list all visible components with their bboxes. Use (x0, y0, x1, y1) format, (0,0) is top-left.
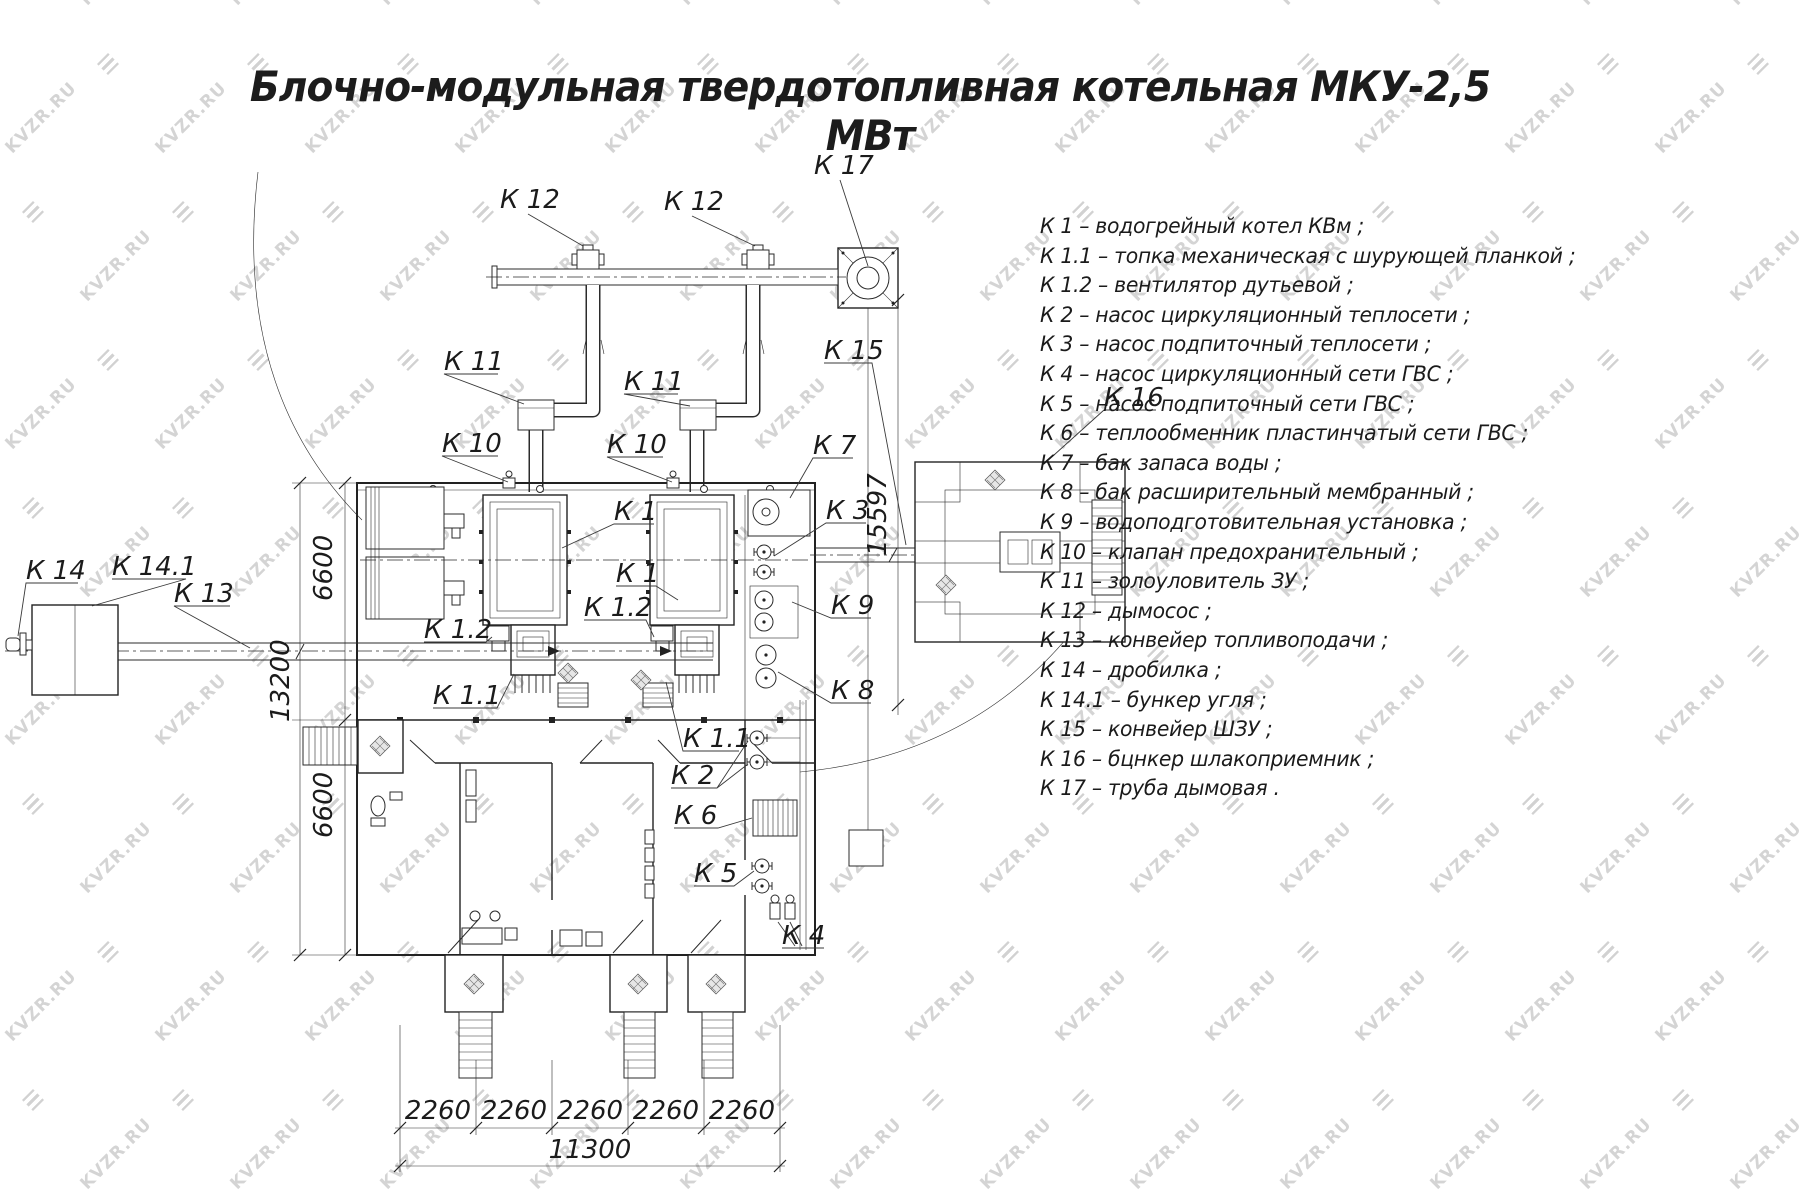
legend-item: К 14.1 – бункер угля ; (1040, 686, 1575, 716)
legend-item: К 16 – бцнкер шлакоприемник ; (1040, 745, 1575, 775)
legend-item: К 1 – водогрейный котел КВм ; (1040, 212, 1575, 242)
room-furniture (371, 663, 654, 946)
equipment-legend: К 1 – водогрейный котел КВм ;К 1.1 – топ… (1040, 212, 1575, 804)
drawing-label: К 2 (671, 761, 714, 791)
drawing-label: К 15 (824, 336, 884, 366)
roof-manifold (430, 486, 774, 493)
legend-item: К 15 – конвейер ШЗУ ; (1040, 715, 1575, 745)
drawing-label: К 1.2 (424, 615, 492, 645)
legend-item: К 4 – насос циркуляционный сети ГВС ; (1040, 360, 1575, 390)
drawing-label: 11300 (549, 1135, 632, 1165)
entrance-porch (688, 920, 745, 1078)
legend-item: К 14 – дробилка ; (1040, 656, 1575, 686)
drawing-label: 2260 (557, 1096, 623, 1126)
drawing-label: 2260 (633, 1096, 699, 1126)
smoke-exhauster-k12 (572, 245, 604, 269)
drawing-label: 13200 (266, 639, 296, 722)
smoke-exhauster-k12 (742, 245, 774, 269)
legend-item: К 7 – бак запаса воды ; (1040, 449, 1575, 479)
water-treatment-k9 (750, 586, 798, 638)
legend-item: К 11 – золоуловитель ЗУ ; (1040, 567, 1575, 597)
crusher-k14 (6, 633, 32, 655)
ash-collector-k11 (518, 400, 554, 430)
drawing-label: К 11 (444, 347, 504, 377)
legend-item: К 17 – труба дымовая . (1040, 774, 1575, 804)
drawing-label: К 1 (616, 559, 659, 589)
drawing-label: 2260 (709, 1096, 775, 1126)
drawing-label: К 12 (500, 185, 560, 215)
water-tank-k7 (748, 490, 810, 536)
legend-item: К 1.2 – вентилятор дутьевой ; (1040, 271, 1575, 301)
drawing-label: К 10 (607, 430, 667, 460)
heat-exchanger-k6 (753, 800, 797, 836)
drawing-label: 6600 (309, 535, 339, 601)
expansion-tanks-k8 (756, 645, 776, 688)
coal-bunker-k14-1 (32, 605, 118, 695)
entrance-porch (610, 920, 667, 1078)
boiler-k1 (479, 471, 571, 625)
legend-item: К 9 – водоподготовительная установка ; (1040, 508, 1575, 538)
drawing-label: К 8 (831, 676, 874, 706)
drawing-label: 6600 (309, 772, 339, 838)
boiler-k1 (646, 471, 738, 625)
legend-item: К 1.1 – топка механическая с шурующей пл… (1040, 242, 1575, 272)
drawing-label: К 1 (614, 497, 657, 527)
drawing-label: К 11 (624, 367, 684, 397)
pumps-k5 (752, 859, 772, 893)
floor-gratings (558, 683, 673, 707)
furnace-k1-1 (675, 625, 719, 693)
entrance-porch (303, 720, 403, 773)
legend-item: К 10 – клапан предохранительный ; (1040, 538, 1575, 568)
drawing-label: 15597 (863, 473, 893, 556)
pumps-k3 (754, 545, 774, 579)
drawing-label: 2260 (481, 1096, 547, 1126)
boiler-house-walls (357, 483, 815, 955)
legend-item: К 12 – дымосос ; (1040, 597, 1575, 627)
drawing-label: К 1.2 (584, 593, 652, 623)
drawing-label: К 9 (831, 591, 874, 621)
drawing-label: 2260 (405, 1096, 471, 1126)
legend-item: К 2 – насос циркуляционный теплосети ; (1040, 301, 1575, 331)
ash-collector-k11 (680, 400, 716, 430)
drawing-label: К 14 (26, 556, 86, 586)
drawing-label: К 6 (674, 801, 717, 831)
drawing-label: К 5 (694, 859, 737, 889)
pumps-k4 (770, 895, 795, 919)
legend-item: К 8 – бак расширительный мембранный ; (1040, 478, 1575, 508)
drawing-label: К 4 (782, 921, 825, 951)
drawing-label: К 7 (813, 431, 857, 461)
drawing-label: К 10 (442, 429, 502, 459)
legend-item: К 3 – насос подпиточный теплосети ; (1040, 330, 1575, 360)
drawing-label: К 1.1 (683, 724, 751, 754)
drawing-label: К 12 (664, 187, 724, 217)
legend-item: К 13 – конвейер топливоподачи ; (1040, 626, 1575, 656)
flue-duct (486, 266, 846, 288)
drawing-label: К 1.1 (433, 681, 501, 711)
cabinet-units (366, 487, 464, 619)
drawing-title: Блочно-модульная твердотопливная котельн… (200, 62, 1539, 160)
drawing-label: К 13 (174, 579, 234, 609)
legend-item: К 6 – теплообменник пластинчатый сети ГВ… (1040, 419, 1575, 449)
legend-item: К 5 – насос подпиточный сети ГВС ; (1040, 390, 1575, 420)
furnace-k1-1 (511, 625, 555, 693)
drawing-label: К 14.1 (112, 552, 197, 582)
